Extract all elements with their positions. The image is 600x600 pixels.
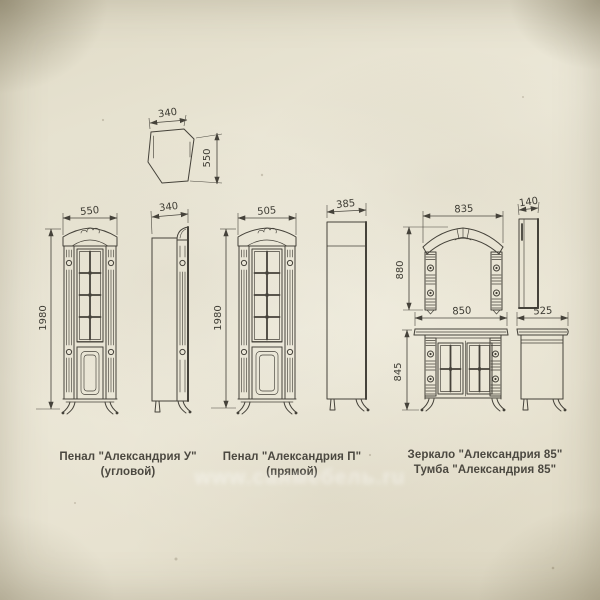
mirror-side-view: 140 — [518, 196, 539, 308]
mirror-front-view: 835 880 — [395, 204, 503, 314]
straight-side-depth-label: 385 — [336, 198, 356, 211]
lower-door — [252, 347, 282, 399]
furniture-dimension-drawing: 340 550 — [0, 0, 600, 600]
straight-cabinet-caption: Пенал "Александрия П" (прямой) — [204, 450, 380, 480]
vanity-side-depth-label: 525 — [533, 306, 553, 318]
glass-door — [252, 249, 282, 342]
straight-cabinet-caption-line2: (прямой) — [204, 465, 380, 480]
mirror-side-depth-label: 140 — [518, 196, 538, 210]
straight-cabinet-side-view: 385 — [327, 198, 369, 411]
vanity-width-label: 850 — [452, 306, 472, 318]
straight-cabinet-front-view: 505 1980 — [211, 205, 297, 414]
straight-front-width-label: 505 — [257, 205, 277, 218]
paper-specks — [74, 96, 554, 569]
top-view-width-label: 340 — [157, 107, 177, 121]
corner-side-depth-label: 340 — [159, 201, 179, 214]
corner-cabinet-caption: Пенал "Александрия У" (угловой) — [40, 450, 216, 480]
vanity-left-door — [438, 343, 463, 394]
corner-cabinet-caption-line2: (угловой) — [40, 465, 216, 480]
mirror-height-label: 880 — [395, 260, 406, 279]
lower-door — [77, 347, 103, 399]
corner-height-label: 1980 — [38, 305, 49, 330]
corner-cabinet-top-view: 340 550 — [148, 107, 222, 184]
vanity-height-label: 845 — [393, 362, 404, 381]
glass-door — [77, 249, 103, 342]
catalog-drawing-page: 340 550 — [0, 0, 600, 600]
corner-cabinet-side-view: 340 — [151, 201, 191, 414]
corner-cabinet-front-view: 550 1980 — [36, 205, 118, 414]
mirror-caption-line: Зеркало "Александрия 85" — [394, 448, 576, 463]
corner-front-width-label: 550 — [80, 205, 100, 218]
vanity-caption-line: Тумба "Александрия 85" — [394, 463, 576, 478]
mirror-vanity-caption: Зеркало "Александрия 85" Тумба "Александ… — [394, 448, 576, 478]
vanity-front-view: 850 845 — [393, 306, 508, 412]
mirror-width-label: 835 — [454, 204, 474, 216]
corner-cabinet-caption-line1: Пенал "Александрия У" — [40, 450, 216, 465]
straight-cabinet-caption-line1: Пенал "Александрия П" — [204, 450, 380, 465]
straight-height-label: 1980 — [213, 305, 224, 330]
vanity-right-door — [467, 343, 492, 394]
top-view-depth-label: 550 — [202, 148, 213, 167]
vanity-side-view: 525 — [517, 306, 568, 412]
